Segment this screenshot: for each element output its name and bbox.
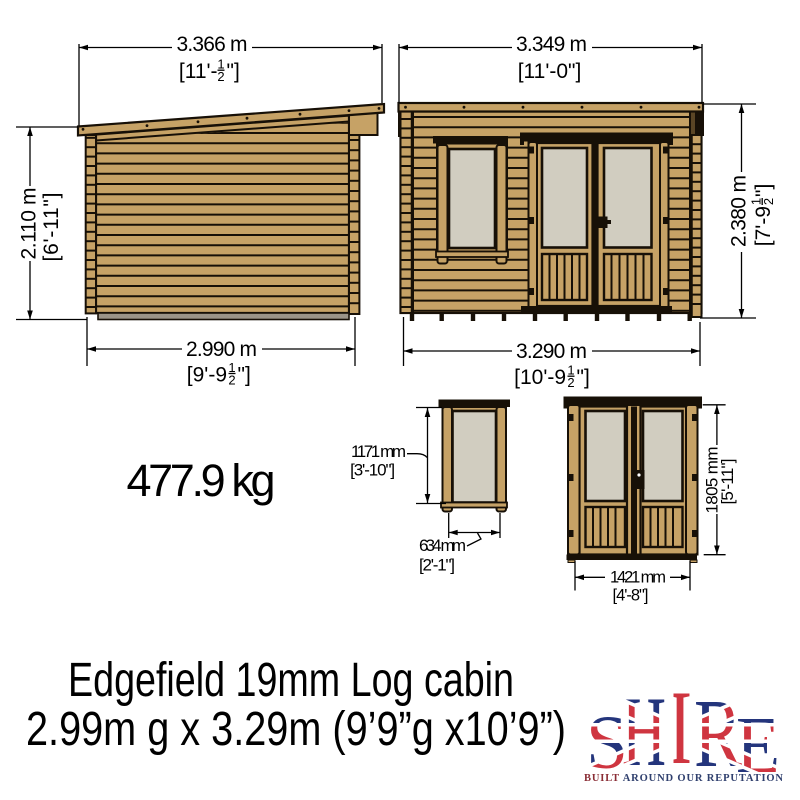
svg-text:[10'-9: [10'-9	[514, 366, 566, 389]
svg-text:[11'-0"]: [11'-0"]	[518, 60, 582, 83]
svg-text:634 mm: 634 mm	[419, 536, 466, 555]
svg-text:[9'-9: [9'-9	[187, 364, 227, 387]
svg-text:2: 2	[228, 373, 235, 388]
svg-text:[5'-11"]: [5'-11"]	[718, 459, 737, 505]
svg-text:2.380 m: 2.380 m	[728, 175, 751, 247]
svg-text:3.349 m: 3.349 m	[516, 33, 587, 56]
svg-text:"]: "]	[227, 60, 240, 83]
svg-text:3.366 m: 3.366 m	[177, 33, 248, 56]
svg-text:3.290 m: 3.290 m	[516, 340, 587, 363]
svg-text:"]: "]	[577, 366, 590, 389]
svg-text:[11'-: [11'-	[179, 60, 218, 83]
svg-text:[7'-9: [7'-9	[752, 206, 775, 246]
svg-text:I: I	[668, 669, 692, 786]
svg-text:2: 2	[761, 198, 776, 205]
svg-text:2.99m g x 3.29m (9’9”g x10’9”): 2.99m g x 3.29m (9’9”g x10’9”)	[26, 703, 566, 756]
svg-text:2.990 m: 2.990 m	[186, 338, 257, 361]
svg-text:"]: "]	[238, 364, 251, 387]
svg-text:[6'-11"]: [6'-11"]	[40, 193, 63, 262]
svg-text:[3'-10"]: [3'-10"]	[350, 461, 395, 480]
svg-text:1421 mm: 1421 mm	[610, 568, 666, 586]
svg-text:Edgefield 19mm Log cabin: Edgefield 19mm Log cabin	[68, 654, 514, 707]
svg-text:H: H	[622, 676, 666, 787]
svg-text:2: 2	[217, 69, 224, 84]
svg-text:2.110 m: 2.110 m	[18, 188, 41, 260]
svg-text:"]: "]	[752, 184, 775, 197]
svg-text:1171 mm: 1171 mm	[351, 442, 406, 461]
svg-text:[4'-8"]: [4'-8"]	[613, 587, 649, 605]
svg-text:BUILT AROUND OUR REPUTATION: BUILT AROUND OUR REPUTATION	[584, 773, 783, 784]
svg-text:477.9 kg: 477.9 kg	[127, 455, 276, 506]
svg-text:[2'-1"]: [2'-1"]	[419, 556, 455, 575]
svg-text:2: 2	[567, 375, 574, 390]
